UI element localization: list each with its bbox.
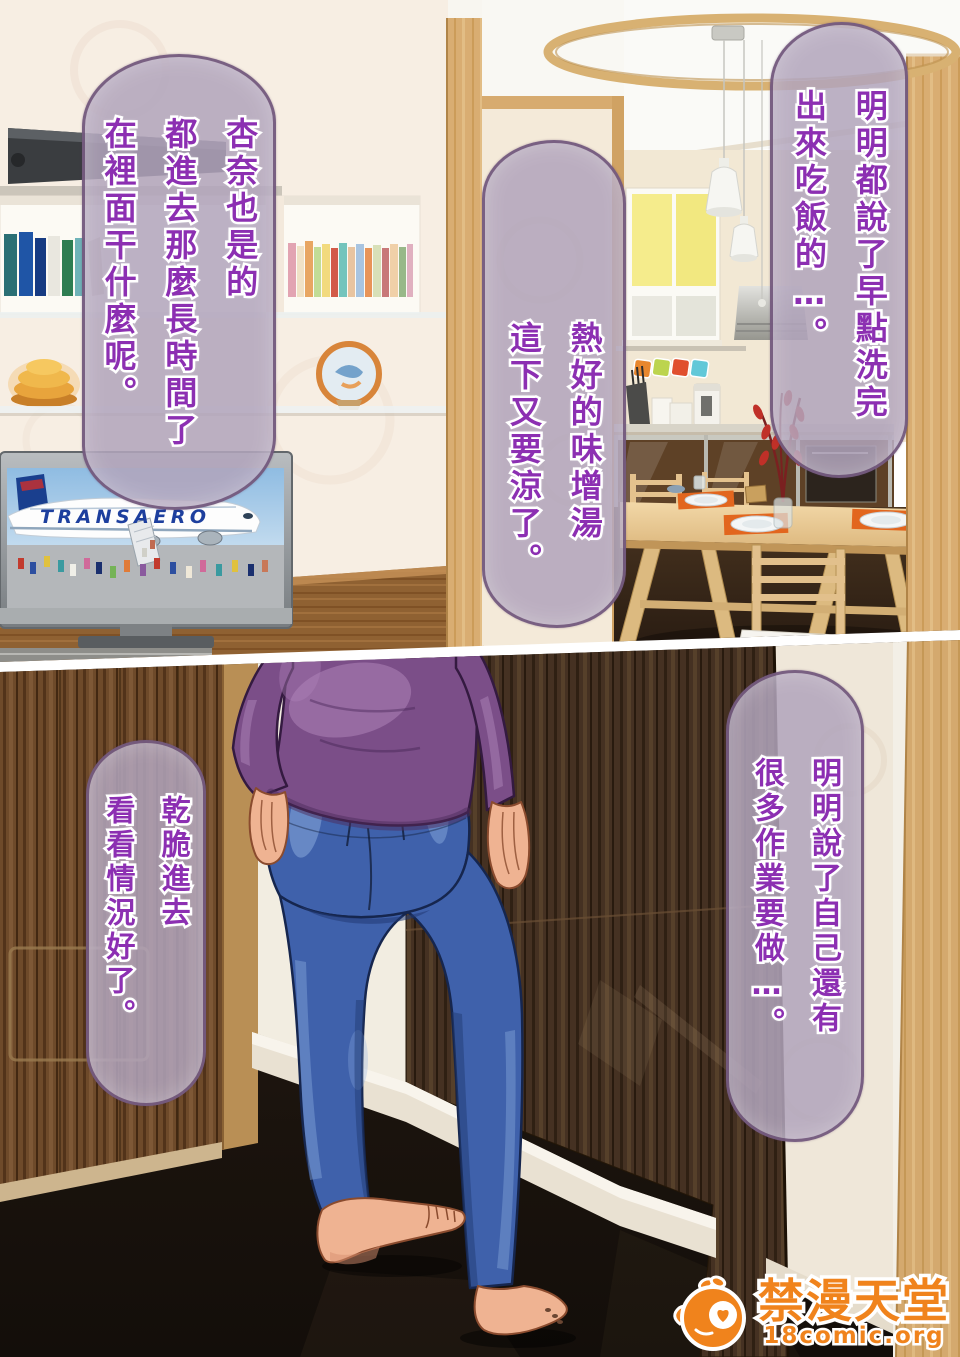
mascot-icon (668, 1270, 754, 1356)
site-watermark: 禁漫天堂 18comic.org (668, 1270, 960, 1356)
speech-bubble-top-left: 杏奈也是的 都進去那麼長時間了 在裡面干什麼呢。 (82, 54, 276, 510)
speech-bubble-bottom-left: 乾脆進去 看看情況好了。 (86, 740, 206, 1106)
speech-text: 熱好的味增湯 這下又要涼了。 (493, 143, 615, 580)
speech-text: 杏奈也是的 都進去那麼長時間了 在裡面干什麼呢。 (88, 57, 270, 450)
speech-bubble-top-right: 明明都說了早點洗完 出來吃飯的…。 (770, 22, 908, 478)
napkin-holder (745, 485, 766, 503)
knife-block (626, 382, 650, 427)
speech-text: 乾脆進去 看看情況好了。 (91, 743, 201, 1033)
watermark-site-url: 18comic.org (763, 1324, 944, 1348)
speech-bubble-bottom-right: 明明說了自己還有 很多作業要做…。 (726, 670, 864, 1142)
books-right (288, 241, 413, 297)
comic-page: TRANSAERO (0, 0, 960, 1357)
speech-text: 明明都說了早點洗完 出來吃飯的…。 (778, 25, 900, 422)
speech-text: 明明說了自己還有 很多作業要做…。 (738, 673, 852, 1042)
watermark-site-name: 禁漫天堂 (758, 1278, 950, 1324)
right-wood-panel (896, 637, 960, 1357)
wood-pillar (906, 54, 960, 670)
speech-bubble-top-middle: 熱好的味增湯 這下又要涼了。 (482, 140, 626, 628)
partition-frame (446, 18, 484, 670)
